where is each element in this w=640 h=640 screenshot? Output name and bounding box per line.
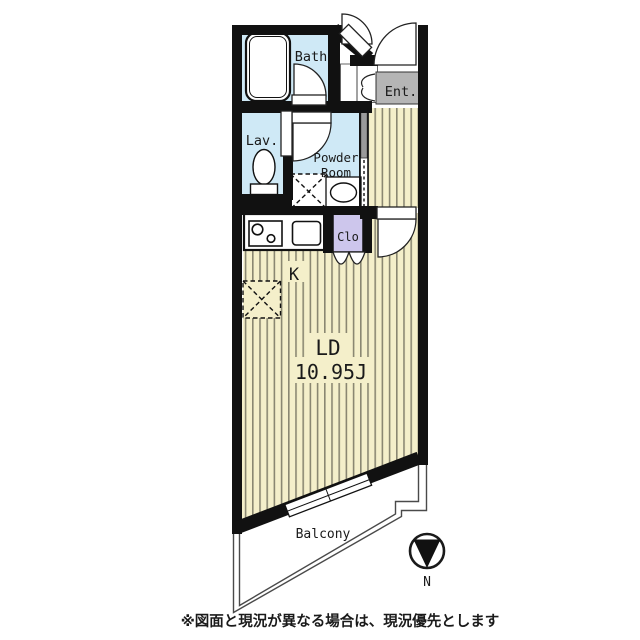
entrance-vestibule xyxy=(341,64,378,103)
ld-size-label: 10.95J xyxy=(295,360,367,384)
compass-label: N xyxy=(423,575,431,590)
bathtub xyxy=(246,33,290,101)
lav-label: Lav. xyxy=(246,133,279,149)
kitchen-counter xyxy=(244,214,330,250)
entrance-door-arc xyxy=(374,23,416,65)
ld-label: LD xyxy=(315,336,340,360)
clo-label: Clo xyxy=(337,230,359,244)
lav-door-leaf xyxy=(281,111,292,156)
powder-door-leaf xyxy=(292,112,331,123)
hallway-floor xyxy=(368,108,418,208)
floor-plan-page: N Bath Lav. Powder Room Ent. Clo K LD 10… xyxy=(0,0,640,640)
vanity-sink xyxy=(326,177,361,209)
disclaimer-note: ※図面と現況が異なる場合は、現況優先とします xyxy=(181,612,500,630)
compass: N xyxy=(410,534,444,590)
ld-door-leaf xyxy=(377,207,416,219)
powder-label-2: Room xyxy=(321,165,351,180)
kitchen-label: K xyxy=(289,265,300,285)
toilet xyxy=(251,150,278,195)
ent-label: Ent. xyxy=(385,84,418,100)
powder-label-1: Powder xyxy=(313,150,359,165)
sliding-door xyxy=(361,110,367,206)
floor-plan-svg: N Bath Lav. Powder Room Ent. Clo K LD 10… xyxy=(0,0,640,640)
bath-door-leaf xyxy=(292,95,326,105)
balcony-label: Balcony xyxy=(296,527,351,542)
refrigerator-space xyxy=(243,281,281,318)
kitchen-sink xyxy=(293,222,321,246)
bath-label: Bath xyxy=(295,49,328,65)
